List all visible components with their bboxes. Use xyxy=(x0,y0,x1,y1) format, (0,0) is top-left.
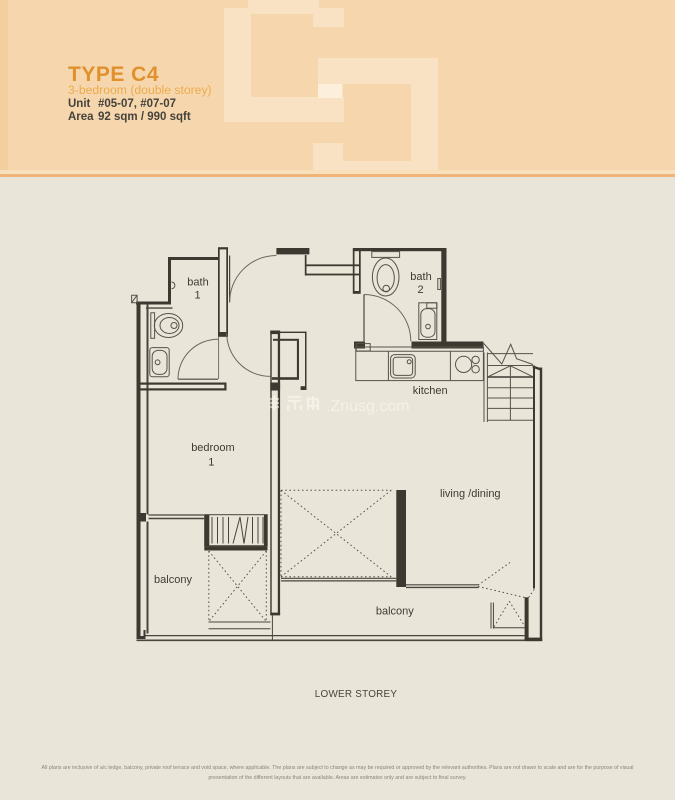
svg-text:living /dining: living /dining xyxy=(440,488,501,500)
svg-text:bath: bath xyxy=(410,271,431,283)
svg-text:balcony: balcony xyxy=(376,606,414,618)
svg-text:.Znusg.com: .Znusg.com xyxy=(326,398,410,415)
svg-text:bedroom: bedroom xyxy=(191,442,234,454)
svg-text:2: 2 xyxy=(417,284,423,296)
svg-text:1: 1 xyxy=(208,456,214,468)
svg-text:1: 1 xyxy=(194,290,200,302)
svg-text:bath: bath xyxy=(187,277,208,289)
svg-text:balcony: balcony xyxy=(154,574,192,586)
svg-text:kitchen: kitchen xyxy=(413,385,448,397)
